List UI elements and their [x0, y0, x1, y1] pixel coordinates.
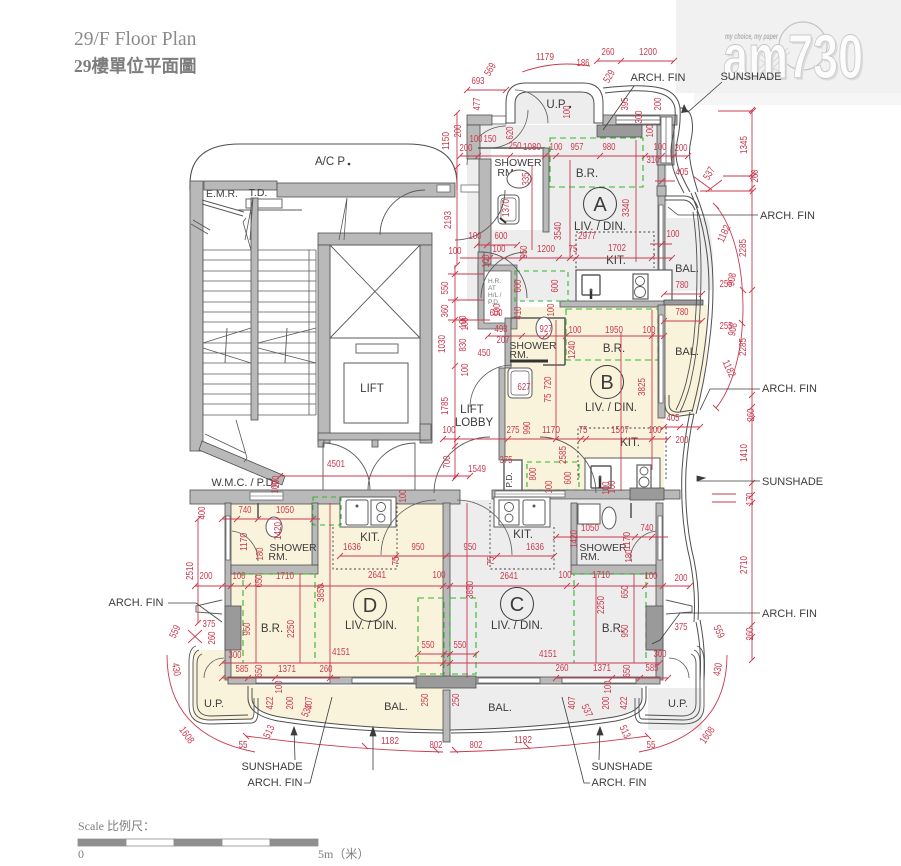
svg-text:950: 950	[241, 622, 253, 635]
svg-text:BAL.: BAL.	[675, 263, 699, 275]
svg-text:375: 375	[500, 454, 513, 466]
svg-text:260: 260	[602, 46, 615, 58]
svg-text:186: 186	[577, 57, 590, 69]
svg-text:BAL.: BAL.	[675, 346, 699, 358]
svg-text:B.R.: B.R.	[603, 343, 625, 355]
svg-text:100: 100	[644, 124, 656, 137]
svg-text:5m（米）: 5m（米）	[318, 847, 369, 861]
svg-text:550: 550	[439, 281, 451, 294]
svg-text:100: 100	[459, 363, 471, 376]
svg-text:29樓單位平面圖: 29樓單位平面圖	[74, 56, 197, 76]
svg-text:BAL.: BAL.	[384, 701, 408, 713]
svg-text:477: 477	[471, 97, 483, 110]
svg-text:RM.: RM.	[268, 551, 287, 563]
svg-text:2285: 2285	[737, 239, 749, 257]
svg-text:950: 950	[412, 541, 425, 553]
svg-text:800: 800	[527, 467, 539, 480]
svg-text:950: 950	[518, 245, 530, 258]
svg-text:H.R.: H.R.	[488, 278, 501, 285]
svg-text:410: 410	[512, 306, 524, 319]
svg-text:2510: 2510	[184, 562, 196, 580]
svg-text:830: 830	[457, 338, 469, 351]
svg-text:1410: 1410	[738, 444, 750, 462]
svg-text:0: 0	[78, 847, 84, 861]
svg-text:600: 600	[495, 230, 508, 242]
svg-text:260: 260	[556, 662, 569, 674]
svg-text:100: 100	[654, 141, 667, 153]
svg-text:100: 100	[643, 324, 656, 336]
svg-text:260: 260	[744, 627, 756, 640]
svg-text:SUNSHADE: SUNSHADE	[591, 761, 652, 773]
svg-text:950: 950	[619, 624, 631, 637]
svg-text:KIT.: KIT.	[606, 255, 626, 267]
svg-text:1050: 1050	[581, 522, 599, 534]
svg-text:LOBBY: LOBBY	[455, 417, 494, 429]
svg-text:693: 693	[472, 75, 485, 87]
svg-text:100: 100	[606, 480, 618, 493]
svg-text:2250: 2250	[285, 620, 297, 638]
svg-text:75: 75	[390, 556, 402, 565]
svg-text:LIV. / DIN.: LIV. / DIN.	[491, 620, 543, 632]
svg-text:1170: 1170	[238, 533, 250, 551]
svg-text:E.M.R.: E.M.R.	[206, 188, 238, 200]
svg-text:650: 650	[621, 664, 633, 677]
svg-text:950: 950	[464, 541, 477, 553]
svg-text:1080: 1080	[523, 141, 541, 153]
svg-text:400: 400	[196, 506, 208, 519]
svg-text:H/L /: H/L /	[488, 292, 502, 299]
svg-text:405: 405	[676, 166, 689, 178]
svg-text:SUNSHADE: SUNSHADE	[762, 476, 823, 488]
svg-text:100: 100	[545, 303, 557, 316]
svg-text:100: 100	[469, 230, 482, 242]
svg-text:B: B	[600, 372, 613, 394]
svg-text:780: 780	[676, 306, 689, 318]
svg-text:650: 650	[253, 664, 265, 677]
svg-text:1420: 1420	[272, 522, 284, 540]
svg-text:75: 75	[485, 556, 497, 565]
svg-text:627: 627	[518, 381, 531, 393]
svg-text:AT: AT	[488, 285, 496, 292]
svg-text:B.R.: B.R.	[261, 623, 283, 635]
svg-text:2585: 2585	[557, 446, 569, 464]
svg-text:100: 100	[561, 105, 573, 118]
svg-text:100: 100	[273, 680, 285, 693]
svg-text:1636: 1636	[526, 541, 544, 553]
svg-text:100: 100	[491, 303, 503, 316]
svg-text:300: 300	[654, 648, 667, 660]
svg-text:275: 275	[507, 424, 520, 436]
svg-text:U.P.: U.P.	[204, 698, 224, 710]
svg-text:1371: 1371	[278, 663, 296, 675]
svg-text:A/C P: A/C P	[315, 156, 345, 168]
svg-text:1240: 1240	[566, 341, 578, 359]
svg-text:100: 100	[559, 569, 572, 581]
svg-text:250: 250	[450, 693, 462, 706]
svg-text:100: 100	[667, 228, 680, 240]
svg-text:430: 430	[169, 662, 183, 677]
svg-text:200: 200	[652, 97, 664, 110]
svg-text:1950: 1950	[605, 324, 623, 336]
svg-text:3850: 3850	[315, 584, 327, 602]
svg-text:180: 180	[254, 547, 266, 560]
svg-text:W.M.C. / P.D.: W.M.C. / P.D.	[211, 477, 276, 489]
svg-text:100: 100	[550, 141, 563, 153]
svg-text:100: 100	[433, 569, 446, 581]
svg-text:55: 55	[647, 739, 656, 751]
svg-text:KIT.: KIT.	[360, 532, 380, 544]
svg-text:Scale 比例尺：: Scale 比例尺：	[78, 819, 155, 833]
svg-text:585: 585	[236, 663, 249, 675]
svg-text:1050: 1050	[276, 504, 294, 516]
svg-text:LIFT: LIFT	[460, 404, 484, 416]
svg-text:1170: 1170	[621, 532, 633, 550]
svg-text:430: 430	[711, 662, 725, 677]
svg-text:2250: 2250	[595, 596, 607, 614]
svg-text:4151: 4151	[539, 648, 557, 660]
svg-text:407: 407	[566, 696, 578, 709]
svg-text:450: 450	[478, 347, 491, 359]
svg-text:310: 310	[647, 154, 660, 166]
svg-text:100: 100	[543, 480, 555, 493]
svg-text:200: 200	[675, 572, 688, 584]
svg-text:3540: 3540	[552, 222, 564, 240]
svg-text:780: 780	[676, 279, 689, 291]
svg-text:600: 600	[512, 279, 524, 292]
svg-text:927: 927	[540, 323, 553, 335]
svg-text:1179: 1179	[536, 51, 554, 63]
svg-text:1371: 1371	[593, 662, 611, 674]
svg-text:550: 550	[422, 639, 435, 651]
svg-text:200: 200	[675, 142, 688, 154]
svg-text:100: 100	[457, 315, 469, 328]
svg-text:720: 720	[542, 376, 554, 389]
svg-text:1150: 1150	[440, 132, 452, 150]
svg-text:3850: 3850	[464, 581, 476, 599]
svg-text:ARCH. FIN: ARCH. FIN	[109, 597, 164, 609]
svg-text:ARCH. FIN: ARCH. FIN	[762, 608, 817, 620]
svg-text:D: D	[363, 595, 377, 617]
svg-text:T.D.: T.D.	[249, 187, 268, 199]
svg-text:ARCH. FIN: ARCH. FIN	[631, 72, 686, 84]
svg-text:1710: 1710	[276, 570, 294, 582]
svg-text:650: 650	[619, 585, 631, 598]
svg-text:ARCH. FIN: ARCH. FIN	[762, 383, 817, 395]
svg-text:200: 200	[452, 124, 464, 137]
svg-text:600: 600	[549, 279, 561, 292]
svg-text:990: 990	[521, 421, 533, 434]
svg-text:600: 600	[562, 471, 574, 484]
svg-text:1170: 1170	[542, 424, 560, 436]
svg-text:A: A	[593, 194, 607, 216]
svg-text:1345: 1345	[738, 136, 750, 154]
svg-text:100: 100	[470, 133, 483, 145]
svg-text:1636: 1636	[343, 541, 361, 553]
svg-text:740: 740	[239, 504, 252, 516]
svg-text:SUNSHADE: SUNSHADE	[720, 71, 781, 83]
svg-text:1549: 1549	[468, 463, 486, 475]
svg-text:75: 75	[542, 393, 554, 402]
svg-text:P.D.: P.D.	[504, 472, 514, 487]
svg-text:2641: 2641	[500, 570, 518, 582]
svg-text:B.R.: B.R.	[576, 168, 598, 180]
svg-text:75: 75	[579, 424, 588, 436]
svg-text:29/F Floor Plan: 29/F Floor Plan	[74, 29, 197, 50]
svg-text:4151: 4151	[332, 646, 350, 658]
svg-text:100: 100	[480, 254, 492, 267]
svg-text:740: 740	[641, 522, 654, 534]
svg-text:100: 100	[449, 245, 462, 257]
svg-text:250: 250	[419, 693, 431, 706]
svg-text:100: 100	[569, 324, 582, 336]
svg-text:U.P.: U.P.	[668, 698, 688, 710]
svg-text:1702: 1702	[608, 242, 626, 254]
svg-text:2641: 2641	[368, 569, 386, 581]
svg-text:1182: 1182	[381, 735, 399, 747]
svg-text:180: 180	[623, 549, 635, 562]
svg-text:100: 100	[233, 570, 246, 582]
svg-text:3340: 3340	[620, 199, 632, 217]
svg-text:802: 802	[430, 739, 443, 751]
svg-text:3825: 3825	[636, 378, 648, 396]
svg-text:620: 620	[504, 126, 516, 139]
svg-text:ARCH. FIN: ARCH. FIN	[592, 777, 647, 789]
svg-text:2977: 2977	[578, 230, 596, 242]
svg-text:200: 200	[676, 434, 689, 446]
svg-text:405: 405	[667, 412, 680, 424]
svg-text:200: 200	[600, 696, 612, 709]
svg-text:2710: 2710	[738, 556, 750, 574]
svg-text:1200: 1200	[639, 46, 657, 58]
svg-text:422: 422	[618, 696, 630, 709]
svg-text:200: 200	[200, 570, 213, 582]
svg-text:957: 957	[571, 141, 584, 153]
svg-text:375: 375	[203, 618, 216, 630]
svg-text:335: 335	[520, 172, 532, 185]
svg-text:RM.: RM.	[580, 551, 599, 563]
svg-text:100: 100	[493, 243, 506, 255]
svg-text:550: 550	[454, 639, 467, 651]
svg-text:260: 260	[206, 631, 218, 644]
svg-text:LIV. / DIN.: LIV. / DIN.	[345, 620, 397, 632]
svg-text:1785: 1785	[439, 397, 451, 415]
svg-text:1507: 1507	[611, 424, 629, 436]
svg-text:200: 200	[284, 696, 296, 709]
svg-text:650: 650	[253, 574, 265, 587]
svg-text:SUNSHADE: SUNSHADE	[241, 761, 302, 773]
svg-text:250: 250	[509, 140, 522, 152]
svg-text:4501: 4501	[327, 458, 345, 470]
svg-text:802: 802	[470, 739, 483, 751]
svg-text:BAL.: BAL.	[488, 702, 512, 714]
svg-text:207: 207	[497, 334, 510, 346]
svg-text:255: 255	[720, 320, 733, 332]
svg-text:422: 422	[264, 696, 276, 709]
svg-text:980: 980	[603, 141, 616, 153]
svg-text:100: 100	[645, 570, 658, 582]
svg-text:300: 300	[229, 649, 242, 661]
svg-text:100: 100	[602, 680, 614, 693]
svg-text:255: 255	[720, 278, 733, 290]
svg-text:375: 375	[675, 621, 688, 633]
svg-text:300: 300	[633, 110, 645, 123]
svg-text:RM.: RM.	[509, 349, 528, 361]
svg-text:1710: 1710	[592, 569, 610, 581]
svg-text:1420: 1420	[568, 530, 580, 548]
svg-text:360: 360	[439, 304, 451, 317]
svg-text:260: 260	[320, 663, 333, 675]
svg-text:75: 75	[569, 243, 578, 255]
svg-text:100: 100	[443, 424, 456, 436]
svg-text:100: 100	[269, 480, 281, 493]
svg-text:170: 170	[744, 492, 756, 505]
svg-text:C: C	[510, 594, 524, 616]
svg-text:55: 55	[239, 739, 248, 751]
svg-text:100: 100	[649, 424, 662, 436]
svg-text:150: 150	[484, 133, 497, 145]
svg-text:ARCH. FIN: ARCH. FIN	[248, 777, 303, 789]
svg-text:KIT.: KIT.	[513, 529, 533, 541]
svg-text:1030: 1030	[436, 335, 448, 353]
svg-text:700: 700	[441, 455, 453, 468]
svg-text:2193: 2193	[442, 211, 454, 229]
svg-text:260: 260	[745, 408, 757, 421]
svg-text:LIFT: LIFT	[360, 383, 384, 395]
svg-text:1182: 1182	[514, 734, 532, 746]
svg-text:100: 100	[397, 489, 409, 502]
svg-text:1200: 1200	[537, 243, 555, 255]
svg-text:585: 585	[646, 662, 659, 674]
svg-text:LIV. / DIN.: LIV. / DIN.	[585, 402, 637, 414]
svg-text:ARCH. FIN: ARCH. FIN	[760, 210, 815, 222]
